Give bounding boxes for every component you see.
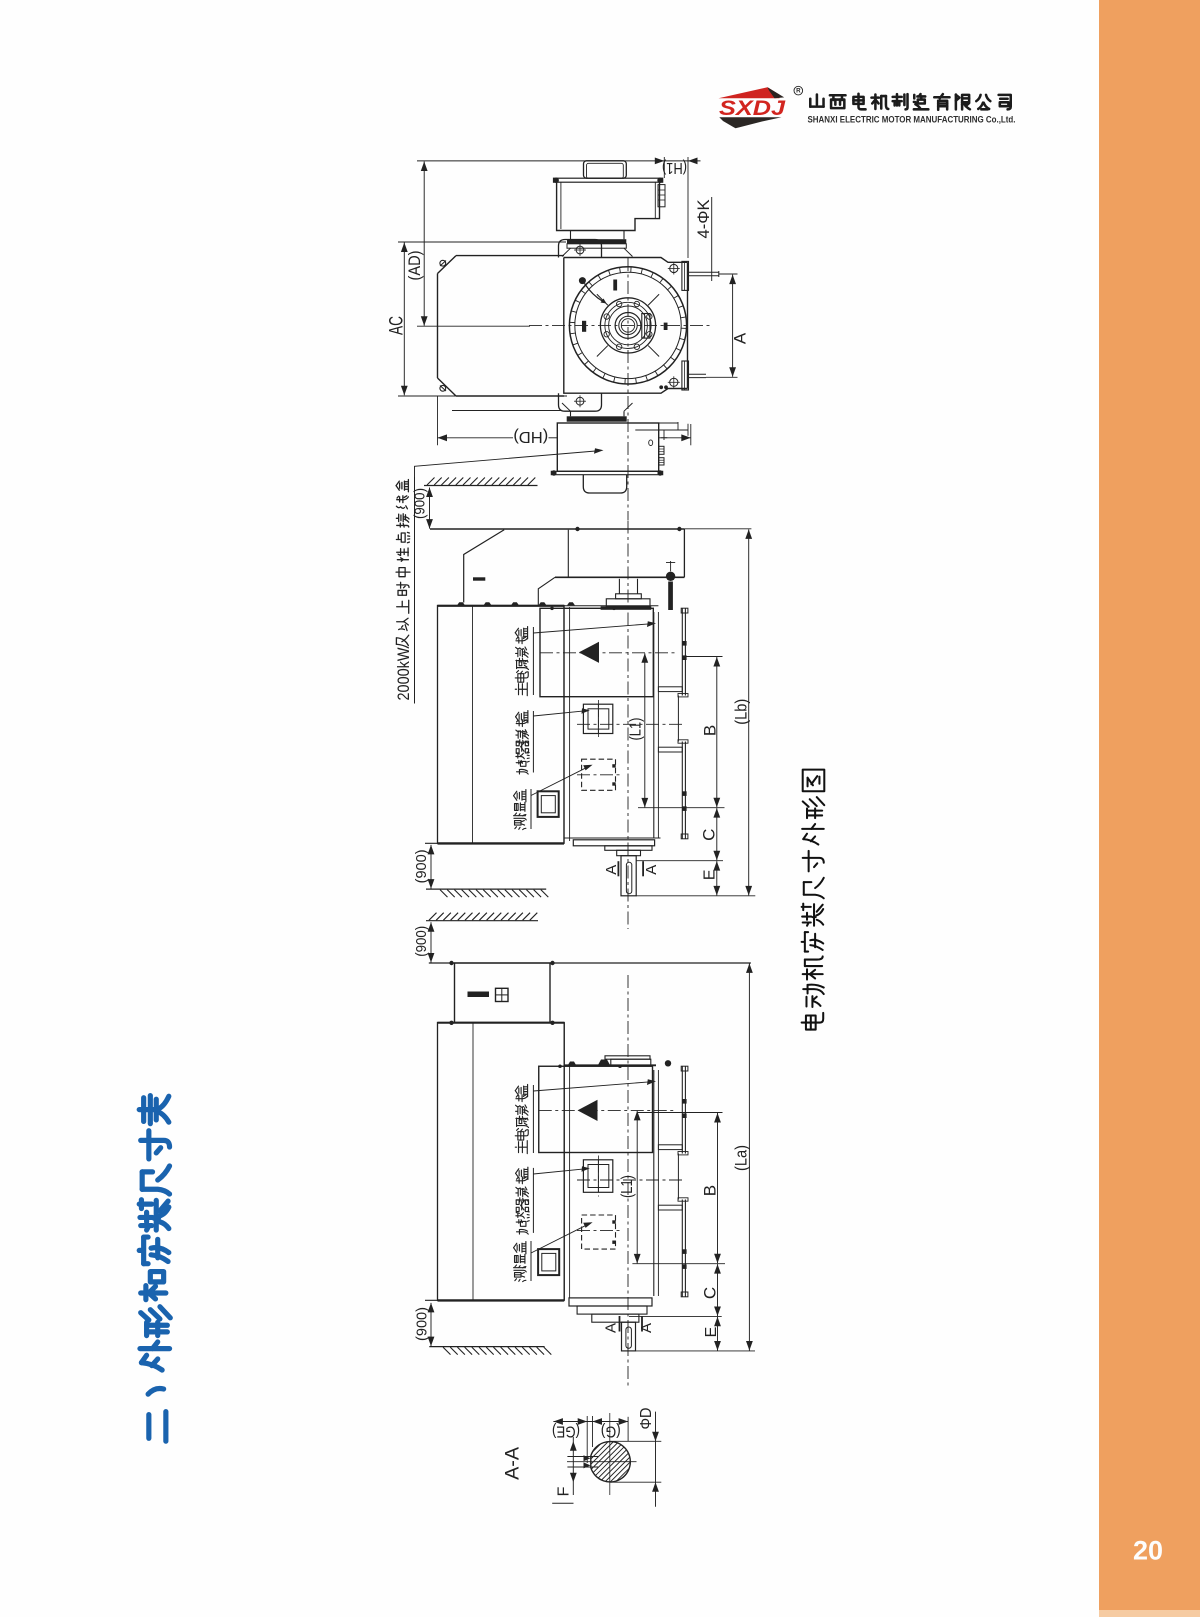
svg-text:C: C <box>701 1287 720 1299</box>
svg-text:(Lb): (Lb) <box>732 699 751 725</box>
svg-text:2000kW: 2000kW <box>395 647 413 700</box>
svg-text:A: A <box>643 865 660 875</box>
svg-text:(900): (900) <box>412 488 429 519</box>
svg-text:SXDJ: SXDJ <box>719 96 786 120</box>
svg-text:R: R <box>796 87 801 94</box>
svg-text:(HD): (HD) <box>513 428 548 445</box>
svg-text:A: A <box>602 1323 619 1333</box>
svg-text:4-ΦK: 4-ΦK <box>695 200 713 239</box>
svg-text:A-A: A-A <box>503 1447 524 1480</box>
svg-text:(AD): (AD) <box>406 251 424 281</box>
svg-text:B: B <box>701 1185 720 1196</box>
svg-text:AC: AC <box>386 316 407 335</box>
svg-text:(900): (900) <box>413 849 430 883</box>
svg-text:(900): (900) <box>413 926 430 957</box>
svg-text:SHANXI ELECTRIC MOTOR MANUFACT: SHANXI ELECTRIC MOTOR MANUFACTURING Co.,… <box>808 114 1016 124</box>
svg-text:(L1): (L1) <box>628 718 645 741</box>
svg-text:B: B <box>700 725 719 736</box>
svg-text:20: 20 <box>1133 1536 1163 1566</box>
svg-text:(900): (900) <box>413 1307 430 1341</box>
svg-text:A: A <box>603 865 620 875</box>
svg-text:(GE): (GE) <box>552 1422 580 1439</box>
svg-text:C: C <box>700 829 719 841</box>
svg-text:E: E <box>702 869 719 880</box>
svg-text:A: A <box>638 1323 655 1333</box>
svg-text:(G): (G) <box>601 1422 621 1439</box>
svg-text:ΦD: ΦD <box>638 1408 655 1430</box>
svg-text:E: E <box>703 1327 720 1338</box>
svg-text:A: A <box>730 332 749 344</box>
svg-text:(H1): (H1) <box>662 159 687 176</box>
svg-text:F: F <box>556 1486 573 1496</box>
svg-text:(La): (La) <box>732 1145 751 1171</box>
